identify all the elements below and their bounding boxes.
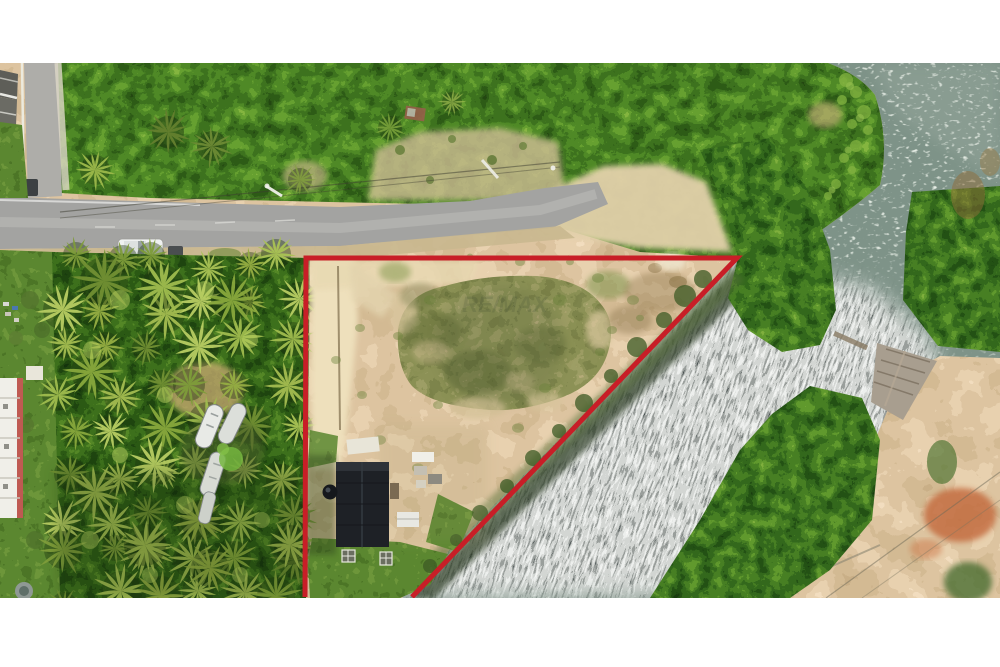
svg-text:RE/MAX: RE/MAX <box>462 292 549 317</box>
